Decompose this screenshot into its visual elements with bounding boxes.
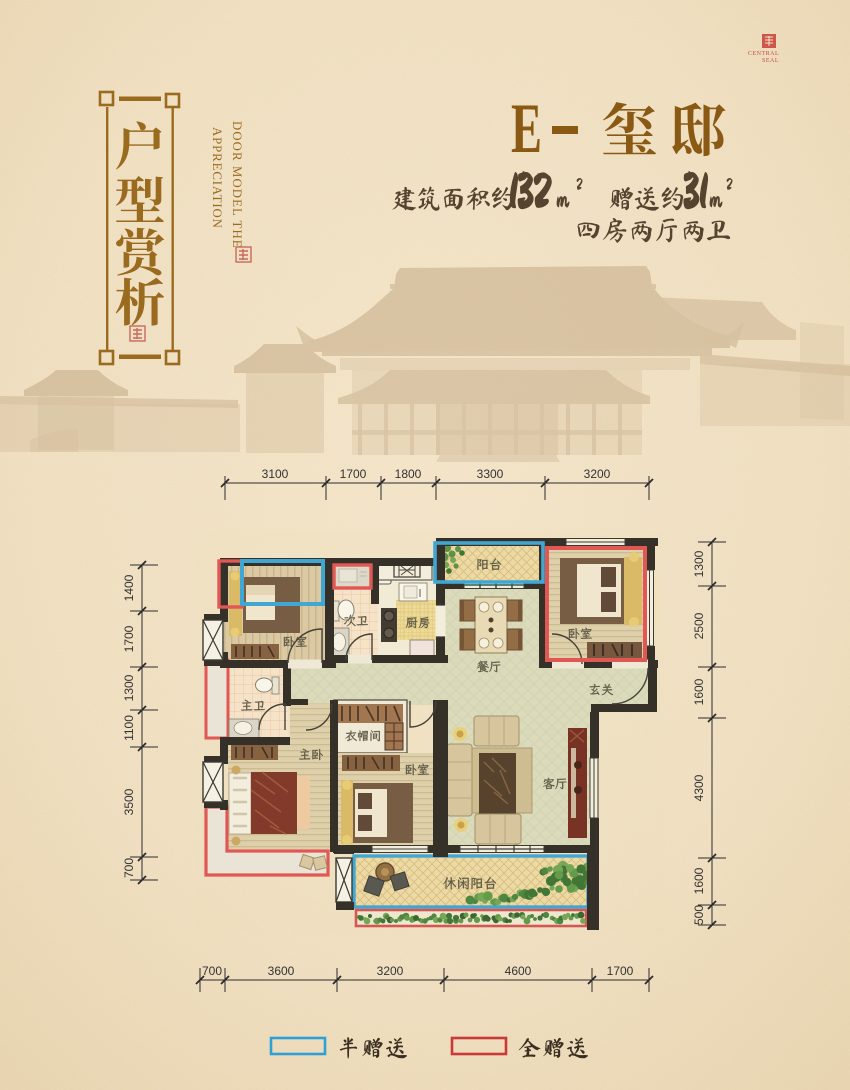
svg-text:1400: 1400: [122, 574, 136, 601]
svg-text:1600: 1600: [692, 678, 706, 705]
svg-text:3600: 3600: [268, 964, 295, 978]
svg-text:500: 500: [692, 905, 706, 925]
svg-text:1700: 1700: [340, 467, 367, 481]
svg-text:1600: 1600: [692, 867, 706, 894]
svg-text:E: E: [511, 90, 542, 168]
svg-text:1800: 1800: [395, 467, 422, 481]
svg-text:1300: 1300: [122, 674, 136, 701]
svg-text:CENTRAL: CENTRAL: [748, 51, 779, 57]
svg-text:4600: 4600: [505, 964, 532, 978]
svg-text:2500: 2500: [692, 612, 706, 639]
svg-text:4300: 4300: [692, 774, 706, 801]
svg-text:3500: 3500: [122, 788, 136, 815]
svg-text:3100: 3100: [262, 467, 289, 481]
svg-text:1700: 1700: [607, 964, 634, 978]
svg-text:APPRECIATION: APPRECIATION: [210, 127, 224, 229]
svg-text:1700: 1700: [122, 625, 136, 652]
svg-text:DOOR MODEL THE: DOOR MODEL THE: [230, 121, 244, 249]
svg-text:1300: 1300: [692, 550, 706, 577]
svg-text:3200: 3200: [584, 467, 611, 481]
svg-text:700: 700: [122, 858, 136, 878]
svg-text:1100: 1100: [122, 715, 136, 741]
svg-text:3200: 3200: [377, 964, 404, 978]
svg-text:3300: 3300: [477, 467, 504, 481]
svg-text:700: 700: [202, 964, 222, 978]
svg-text:SEAL: SEAL: [762, 58, 779, 64]
